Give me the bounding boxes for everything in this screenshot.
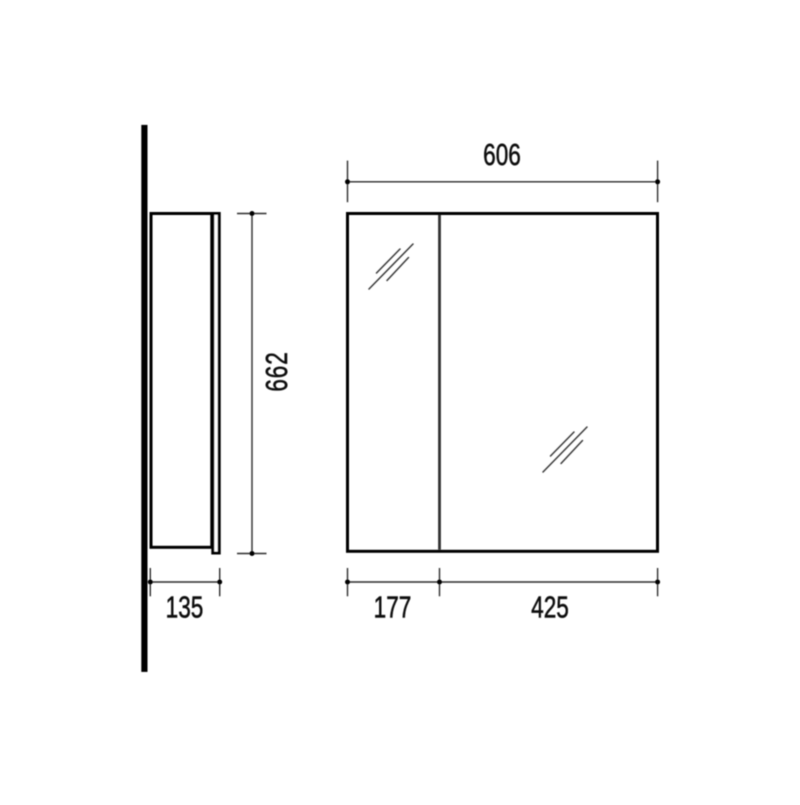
svg-text:135: 135 — [166, 590, 204, 624]
svg-text:177: 177 — [374, 590, 412, 624]
svg-text:606: 606 — [483, 138, 521, 172]
svg-text:662: 662 — [260, 351, 294, 391]
svg-text:425: 425 — [531, 590, 569, 624]
